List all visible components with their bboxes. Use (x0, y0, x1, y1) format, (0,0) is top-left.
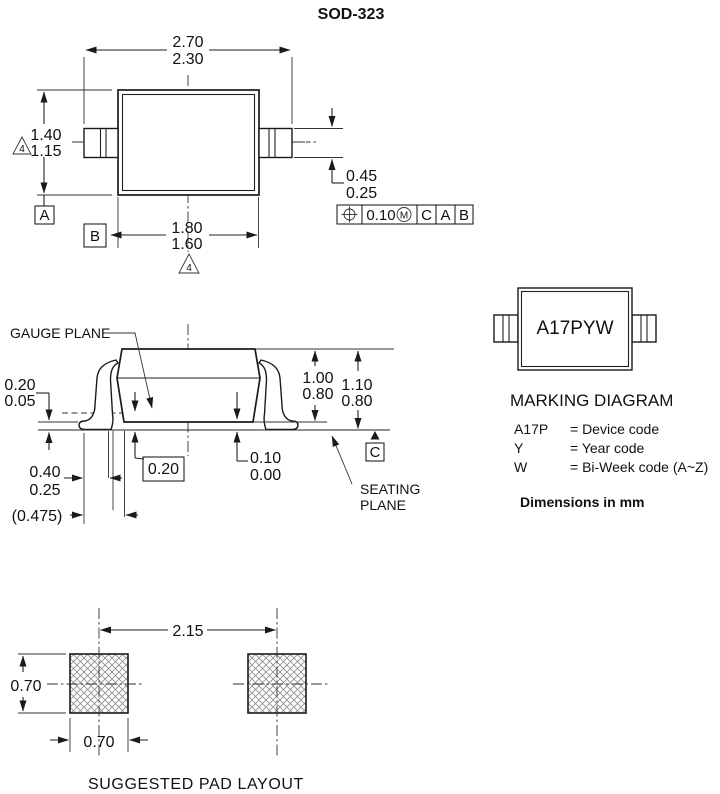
dim-body-min: 1.60 (171, 236, 202, 253)
dim-overall-min: 2.30 (172, 51, 203, 68)
seating-plane-label: SEATING (360, 481, 420, 497)
dim-total-height-min: 0.80 (341, 393, 372, 410)
dim-standoff-max: 0.10 (250, 450, 281, 467)
legend-value: = Year code (570, 440, 645, 456)
dim-overall-max: 2.70 (172, 34, 203, 51)
dim-height-min: 1.15 (30, 143, 61, 160)
fcf-modifier: M (400, 211, 408, 222)
dim-pitch: 2.15 (172, 623, 203, 640)
gauge-plane-label: GAUGE PLANE (10, 325, 110, 341)
marking-lead-right (632, 315, 656, 342)
dim-body-height-min: 0.80 (302, 386, 333, 403)
fcf-tolerance: 0.10 (366, 207, 395, 224)
dim-body-height-max: 1.00 (302, 370, 333, 387)
dim-gauge-height: 0.20 (148, 461, 179, 478)
dim-lead-min: 0.25 (346, 185, 377, 202)
marking-heading: MARKING DIAGRAM (510, 391, 673, 410)
dim-lead-thickness-max: 0.20 (4, 377, 35, 394)
dim-foot-length-max: 0.40 (29, 464, 60, 481)
datum-c-label: C (370, 444, 381, 461)
fcf-datum-2: A (440, 207, 450, 224)
package-body-outer (118, 90, 259, 195)
package-outline-drawing: SOD-323 2.70 2.30 1.40 1.15 4 (0, 0, 720, 794)
datum-b-label: B (90, 228, 100, 245)
legend-key: A17P (514, 421, 548, 437)
legend-key: Y (514, 440, 524, 456)
page-title: SOD-323 (318, 6, 385, 23)
marking-code: A17PYW (536, 318, 613, 339)
marking-lead-left (494, 315, 518, 342)
note-flag: 4 (186, 263, 192, 274)
dim-pad-height: 0.70 (10, 678, 41, 695)
dim-foot-length-min: 0.25 (29, 482, 60, 499)
units-note: Dimensions in mm (520, 494, 644, 510)
dim-lead-thickness-min: 0.05 (4, 393, 35, 410)
pad-layout-caption: SUGGESTED PAD LAYOUT (88, 776, 304, 793)
dim-total-height-max: 1.10 (341, 377, 372, 394)
legend-value: = Bi-Week code (A~Z) (570, 459, 708, 475)
fcf-datum-3: B (459, 207, 469, 224)
note-flag: 4 (19, 144, 25, 155)
legend-value: = Device code (570, 421, 659, 437)
datum-a-label: A (39, 207, 49, 224)
drawing-canvas: SOD-323 2.70 2.30 1.40 1.15 4 (0, 0, 720, 794)
dim-body-max: 1.80 (171, 220, 202, 237)
dim-standoff-min: 0.00 (250, 467, 281, 484)
seating-plane-label: PLANE (360, 497, 406, 513)
dim-lead-max: 0.45 (346, 168, 377, 185)
package-body-profile (117, 349, 260, 422)
legend-key: W (514, 459, 528, 475)
dim-pad-width: 0.70 (83, 734, 114, 751)
fcf-datum-1: C (421, 207, 432, 224)
dim-reference: (0.475) (12, 508, 63, 525)
dim-height-max: 1.40 (30, 127, 61, 144)
